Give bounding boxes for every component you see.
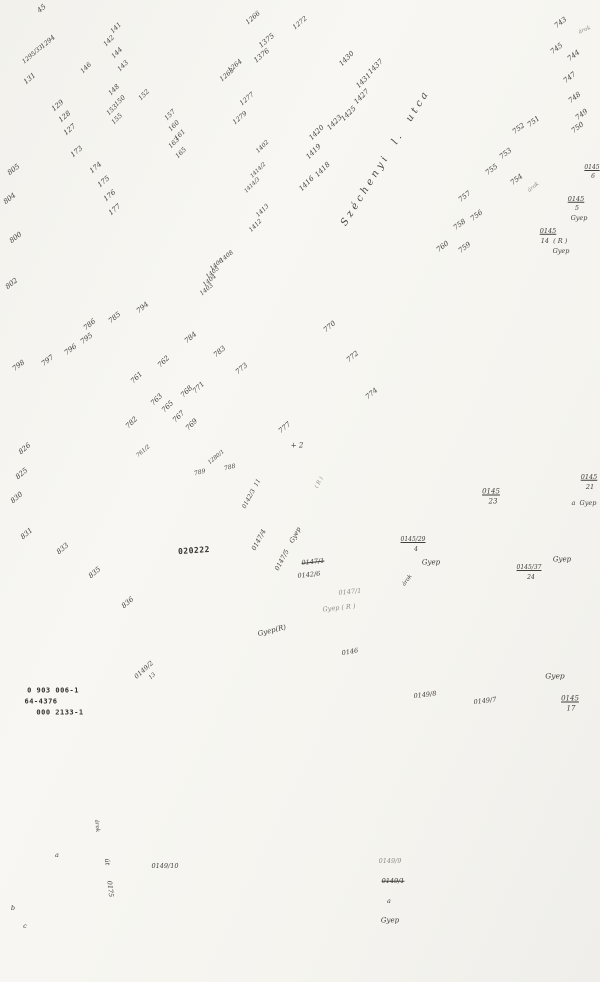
parcel-number-label: 174 xyxy=(89,161,104,175)
parcel-number-label: 0149/8 xyxy=(413,690,436,699)
parcel-number-label: 749 xyxy=(575,108,590,122)
parcel-number-label: 765 xyxy=(161,400,175,414)
parcel-number-label: c xyxy=(23,923,27,930)
parcel-number-label: 798 xyxy=(12,359,27,373)
parcel-number-label: 173 xyxy=(70,145,85,159)
parcel-number-label: 165 xyxy=(174,146,187,159)
stamp-number: 020222 xyxy=(178,546,210,556)
parcel-number-label: 0147/1 xyxy=(338,588,361,597)
parcel-number-label: 754 xyxy=(510,173,525,187)
parcel-number-label: 0149/9 xyxy=(379,858,402,865)
parcel-number-label: 0147/1 xyxy=(301,558,324,567)
parcel-number-label: 756 xyxy=(470,209,485,223)
parcel-number-label: 830 xyxy=(10,491,25,505)
parcel-number-label: 1418 xyxy=(314,161,332,179)
parcel-number-label: 1403 xyxy=(199,283,215,297)
parcel-number-label: 1412 xyxy=(248,218,263,233)
land-use-label: Gyep xyxy=(553,248,570,255)
land-use-label: Gyep xyxy=(553,557,571,564)
parcel-number-label: 770 xyxy=(323,320,338,334)
parcel-number-label: 782 xyxy=(125,416,139,430)
parcel-number-label: 835 xyxy=(88,566,103,580)
parcel-number-label: a xyxy=(387,898,391,905)
parcel-number-label: 804 xyxy=(3,192,18,206)
parcel-number-label: 796 xyxy=(64,343,79,357)
road-feature-label: árok xyxy=(578,26,592,36)
parcel-number-label: 1416 xyxy=(298,175,316,193)
parcel-number-label: 0145/37 xyxy=(517,565,542,571)
parcel-number-label: a xyxy=(55,852,59,859)
parcel-number-label: 1272 xyxy=(292,15,309,31)
parcel-number-label: 745 xyxy=(550,42,565,56)
parcel-number-label: 1420 xyxy=(308,124,326,142)
land-use-label: Gyep xyxy=(422,560,440,567)
parcel-number-label: 1277 xyxy=(239,91,256,107)
parcel-number-label: 14 ( R ) xyxy=(541,238,568,245)
road-feature-label: 0175 xyxy=(106,880,114,897)
parcel-number-label: 773 xyxy=(235,362,250,376)
parcel-number-label: 826 xyxy=(18,442,33,456)
parcel-number-label: 786 xyxy=(83,318,98,332)
parcel-number-label: 831 xyxy=(20,527,35,541)
parcel-number-label: 785 xyxy=(108,311,123,325)
parcel-number-label: 1414/3 xyxy=(244,177,262,195)
parcel-number-label: 1419 xyxy=(305,143,323,161)
parcel-number-label: 177 xyxy=(108,203,123,217)
stamp-number: 0 903 006-1 xyxy=(27,688,79,695)
parcel-number-label: 0147/4 xyxy=(251,528,267,551)
parcel-number-label: 45 xyxy=(36,3,47,14)
parcel-number-label: 802 xyxy=(5,277,20,291)
parcel-number-label: 758 xyxy=(453,218,468,232)
parcel-number-label: b xyxy=(11,905,15,912)
parcel-labels-layer: 4512941295/33131129128127173174175176177… xyxy=(0,0,600,982)
parcel-number-label: 743 xyxy=(554,16,569,30)
parcel-number-label: 769 xyxy=(185,418,199,432)
parcel-number-label: 757 xyxy=(458,190,473,204)
parcel-number-label: 1413 xyxy=(255,203,270,218)
parcel-number-label: 771 xyxy=(192,381,206,395)
parcel-number-label: 794 xyxy=(136,301,151,315)
parcel-number-label: 13 xyxy=(149,673,158,682)
parcel-number-label: 0149/7 xyxy=(473,696,496,705)
parcel-number-label: 800 xyxy=(9,231,24,245)
parcel-number-label: 4 xyxy=(414,547,418,553)
parcel-number-label: 23 xyxy=(489,499,498,506)
parcel-number-label: 0145/29 xyxy=(401,537,426,543)
parcel-number-label: 1279 xyxy=(232,110,249,126)
parcel-number-label: 0145 xyxy=(561,696,579,703)
parcel-number-label: 788 xyxy=(224,464,237,473)
parcel-number-label: 748 xyxy=(568,91,583,105)
parcel-number-label: 146 xyxy=(79,61,92,74)
parcel-number-label: 836 xyxy=(121,596,136,610)
parcel-number-label: 0149/1 xyxy=(382,878,405,885)
parcel-number-label: 141 xyxy=(109,21,122,34)
parcel-number-label: 744 xyxy=(567,49,582,63)
land-use-label: Gyep xyxy=(381,918,399,925)
parcel-number-label: 774 xyxy=(365,387,380,401)
parcel-number-label: 142 xyxy=(102,34,115,47)
parcel-number-label: 761 xyxy=(130,371,144,385)
parcel-number-label: 760 xyxy=(436,240,451,254)
land-use-label: 0147/5 Gyep xyxy=(274,526,302,571)
road-feature-label: út xyxy=(103,858,110,865)
parcel-number-label: 127 xyxy=(63,123,78,137)
parcel-number-label: 772 xyxy=(346,350,361,364)
parcel-number-label: 789 xyxy=(194,469,207,478)
parcel-number-label: 143 xyxy=(116,59,129,72)
parcel-number-label: 825 xyxy=(15,467,30,481)
parcel-number-label: 0142/3 11 xyxy=(242,478,263,510)
parcel-number-label: ( R ) xyxy=(315,476,325,489)
land-use-label: Gyep xyxy=(571,215,588,222)
parcel-number-label: 752 xyxy=(512,122,527,136)
parcel-number-label: 1430 xyxy=(338,50,356,68)
road-feature-label: árok xyxy=(527,182,540,194)
parcel-number-label: 128 xyxy=(58,110,73,124)
road-feature-label: árok xyxy=(402,574,414,587)
parcel-number-label: 784 xyxy=(184,331,199,345)
parcel-number-label: 762 xyxy=(157,355,171,369)
parcel-number-label: 833 xyxy=(56,542,71,556)
cadastral-map-sheet: 4512941295/33131129128127173174175176177… xyxy=(0,0,600,982)
land-use-label: a Gyep xyxy=(572,500,597,507)
stamp-number: 000 2133-1 xyxy=(36,710,83,717)
land-use-label: Gyep(R) xyxy=(257,624,287,638)
parcel-number-label: 1423 xyxy=(326,114,344,132)
parcel-number-label: 1266 xyxy=(245,10,262,26)
parcel-number-label: 0146 xyxy=(341,647,358,656)
parcel-number-label: 24 xyxy=(527,575,535,581)
parcel-number-label: 21 xyxy=(586,484,594,491)
parcel-number-label: 1263 xyxy=(219,67,236,83)
parcel-number-label: 6 xyxy=(591,174,595,180)
parcel-number-label: 750 xyxy=(571,121,586,135)
parcel-number-label: 1280/1 xyxy=(208,450,226,467)
stamp-number: 64-4376 xyxy=(24,699,57,706)
land-use-label: Gyep ( R ) xyxy=(322,603,356,613)
parcel-number-label: 795 xyxy=(80,332,95,346)
parcel-number-label: 0149/10 xyxy=(151,863,178,870)
parcel-number-label: 131 xyxy=(23,72,38,86)
parcel-number-label: 1437 xyxy=(367,58,385,76)
parcel-number-label: 176 xyxy=(103,189,118,203)
parcel-number-label: 1402 xyxy=(255,139,270,154)
parcel-number-label: 1376 xyxy=(253,48,271,65)
parcel-number-label: 797 xyxy=(41,354,56,368)
parcel-number-label: 755 xyxy=(485,163,500,177)
parcel-number-label: 761/2 xyxy=(136,445,152,459)
parcel-number-label: 0142/6 xyxy=(297,571,320,580)
parcel-number-label: 767 xyxy=(172,410,186,424)
parcel-number-label: 783 xyxy=(213,345,228,359)
land-use-label: Gyep xyxy=(545,672,564,680)
parcel-number-label: 5 xyxy=(575,205,579,212)
parcel-number-label: 144 xyxy=(110,46,123,59)
parcel-number-label: 1414/2 xyxy=(250,162,268,180)
parcel-number-label: 1427 xyxy=(353,88,371,106)
parcel-number-label: 0145 xyxy=(568,196,585,203)
parcel-number-label: 777 xyxy=(278,421,293,435)
parcel-number-label: 152 xyxy=(137,88,150,101)
parcel-number-label: 175 xyxy=(97,175,112,189)
parcel-number-label: 0145 xyxy=(482,489,500,496)
road-feature-label: árok xyxy=(93,819,100,832)
parcel-number-label: 805 xyxy=(7,163,22,177)
parcel-number-label: 747 xyxy=(563,71,578,85)
parcel-number-label: 17 xyxy=(567,706,576,713)
parcel-number-label: 0145 xyxy=(581,474,598,481)
parcel-number-label: 1425 xyxy=(340,105,358,123)
parcel-number-label: 0145 xyxy=(540,228,557,235)
parcel-number-label: 751 xyxy=(527,115,542,129)
parcel-number-label: 753 xyxy=(499,147,514,161)
parcel-number-label: 1295/33 xyxy=(22,45,45,66)
parcel-number-label: 759 xyxy=(458,241,473,255)
parcel-number-label: 0145 xyxy=(584,165,599,171)
parcel-number-label: + 2 xyxy=(291,443,304,450)
